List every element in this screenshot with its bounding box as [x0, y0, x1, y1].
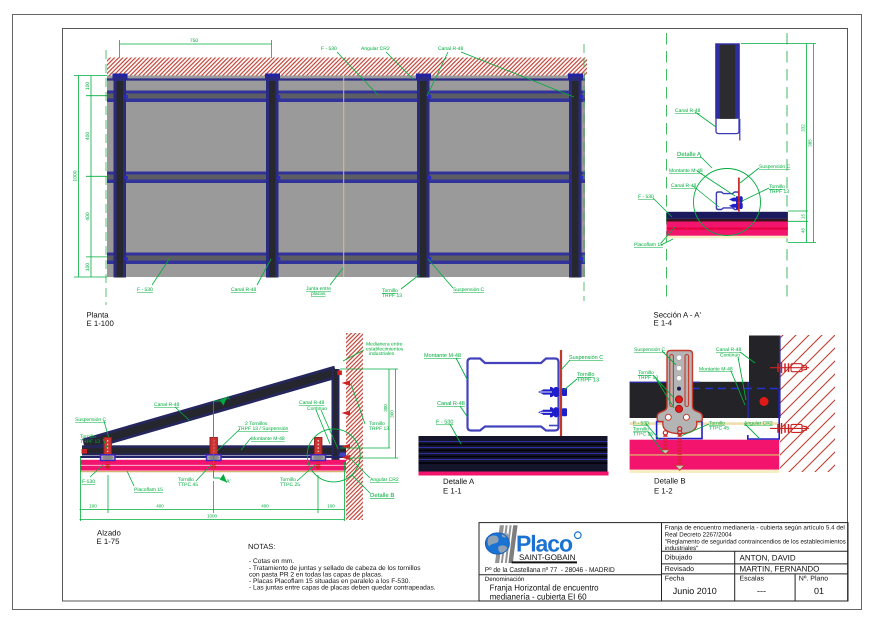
svg-text:Dibujado: Dibujado	[665, 554, 693, 562]
svg-text:- Las juntas entre capas de pl: - Las juntas entre capas de placas deben…	[249, 585, 436, 592]
svg-text:100: 100	[89, 504, 97, 509]
svg-text:Detalle A: Detalle A	[677, 151, 701, 158]
svg-text:Detalle B: Detalle B	[370, 492, 394, 499]
svg-text:TRPF 13: TRPF 13	[577, 378, 599, 384]
svg-text:Montante M-48: Montante M-48	[669, 168, 703, 174]
svg-text:400: 400	[85, 212, 91, 221]
svg-text:E 1-2: E 1-2	[654, 487, 673, 496]
svg-text:Suspensión C: Suspensión C	[569, 354, 603, 361]
svg-text:TRPF 13 / Suspensión: TRPF 13 / Suspensión	[238, 426, 289, 432]
svg-text:---: ---	[757, 586, 766, 596]
svg-text:TTPC 25: TTPC 25	[633, 432, 653, 438]
svg-text:100: 100	[85, 82, 91, 91]
svg-text:E 1-1: E 1-1	[443, 487, 462, 496]
svg-text:Suspensión C: Suspensión C	[75, 417, 107, 423]
svg-text:Montante M-48: Montante M-48	[424, 353, 461, 359]
svg-text:332: 332	[801, 124, 806, 132]
svg-text:Canal R-48: Canal R-48	[437, 401, 465, 407]
svg-text:E 1-75: E 1-75	[97, 537, 121, 546]
svg-text:Detalle A: Detalle A	[443, 477, 475, 486]
svg-text:ANTON, DAVID: ANTON, DAVID	[740, 554, 796, 563]
svg-text:Canal R-48: Canal R-48	[154, 402, 180, 408]
svg-text:Franja de encuentro medianería: Franja de encuentro medianería - cubiert…	[665, 525, 845, 532]
svg-text:NOTAS:: NOTAS:	[248, 542, 275, 551]
svg-text:360: 360	[390, 410, 395, 418]
svg-text:45: 45	[801, 228, 806, 234]
svg-text:F - 530: F - 530	[436, 420, 453, 426]
svg-text:TRPF 13: TRPF 13	[369, 426, 389, 432]
svg-text:400: 400	[85, 132, 91, 141]
svg-text:1000: 1000	[73, 170, 79, 181]
svg-text:Pº de la Castellana nº 77 - 2: Pº de la Castellana nº 77 - 28046 - MADR…	[485, 566, 615, 574]
svg-text:industriales": industriales"	[665, 545, 699, 552]
svg-text:TTPC 45: TTPC 45	[178, 482, 198, 488]
svg-text:E 1-4: E 1-4	[654, 319, 673, 328]
svg-text:MARTIN, FERNANDO: MARTIN, FERNANDO	[740, 565, 820, 574]
svg-text:TTPC 45: TTPC 45	[709, 426, 729, 432]
svg-text:Suspensión C: Suspensión C	[453, 287, 485, 293]
svg-text:385: 385	[808, 139, 813, 147]
svg-text:750: 750	[190, 38, 199, 44]
svg-text:A: A	[226, 396, 230, 402]
svg-text:F - 530: F - 530	[137, 287, 153, 293]
svg-text:Angular CR2: Angular CR2	[744, 421, 773, 427]
svg-text:Revisado: Revisado	[665, 565, 694, 573]
svg-text:Real Decreto 2267/2004: Real Decreto 2267/2004	[665, 532, 733, 539]
svg-text:100: 100	[327, 504, 335, 509]
svg-text:01: 01	[814, 586, 824, 596]
svg-text:Angular CR2: Angular CR2	[370, 477, 399, 483]
svg-text:TRPF 13: TRPF 13	[769, 189, 789, 195]
svg-text:Montante M-48: Montante M-48	[251, 436, 285, 442]
svg-text:100: 100	[85, 263, 91, 272]
svg-text:Detalle B: Detalle B	[654, 477, 686, 486]
svg-text:15: 15	[801, 214, 806, 220]
svg-text:industriales: industriales	[369, 351, 395, 357]
svg-text:Placoflam 15: Placoflam 15	[134, 487, 163, 493]
svg-text:Canal R-48: Canal R-48	[231, 287, 257, 293]
svg-text:Fecha: Fecha	[665, 575, 685, 583]
svg-text:TRPF 13: TRPF 13	[80, 439, 100, 445]
svg-text:Escalas: Escalas	[740, 575, 765, 583]
svg-text:Montante M-48: Montante M-48	[699, 367, 733, 373]
svg-text:300: 300	[383, 404, 388, 412]
svg-text:Nº. Plano: Nº. Plano	[799, 575, 829, 583]
svg-text:1000: 1000	[207, 514, 218, 519]
svg-text:E 1-100: E 1-100	[87, 319, 115, 328]
svg-text:placas: placas	[311, 291, 326, 297]
svg-text:F - 530: F - 530	[321, 46, 337, 52]
svg-text:F - 530: F - 530	[638, 194, 654, 200]
svg-text:Continuo: Continuo	[720, 353, 740, 359]
svg-text:Suspensión C: Suspensión C	[759, 164, 791, 170]
svg-text:400: 400	[261, 504, 269, 509]
svg-text:SAINT-GOBAIN: SAINT-GOBAIN	[519, 553, 576, 562]
svg-text:F-530: F-530	[82, 479, 95, 485]
svg-text:TRPF 13: TRPF 13	[638, 375, 658, 381]
svg-text:Placoflam 15: Placoflam 15	[634, 242, 663, 248]
svg-text:TTPC 25: TTPC 25	[280, 482, 300, 488]
svg-text:Angular CR2: Angular CR2	[361, 46, 390, 52]
svg-text:A': A'	[226, 479, 231, 485]
svg-text:Continuo: Continuo	[307, 406, 327, 412]
svg-text:Junio 2010: Junio 2010	[673, 586, 717, 596]
svg-text:medianería - cubierta EI 60: medianería - cubierta EI 60	[490, 592, 587, 602]
svg-text:Suspensión C: Suspensión C	[634, 347, 666, 353]
svg-text:400: 400	[156, 504, 164, 509]
svg-text:Canal R-48: Canal R-48	[671, 183, 697, 189]
svg-text:TRPF 13: TRPF 13	[382, 293, 402, 299]
svg-text:- Cotas en mm.: - Cotas en mm.	[249, 558, 294, 565]
svg-text:Canal R-48: Canal R-48	[438, 46, 464, 52]
svg-text:Canal R-48: Canal R-48	[675, 108, 701, 114]
